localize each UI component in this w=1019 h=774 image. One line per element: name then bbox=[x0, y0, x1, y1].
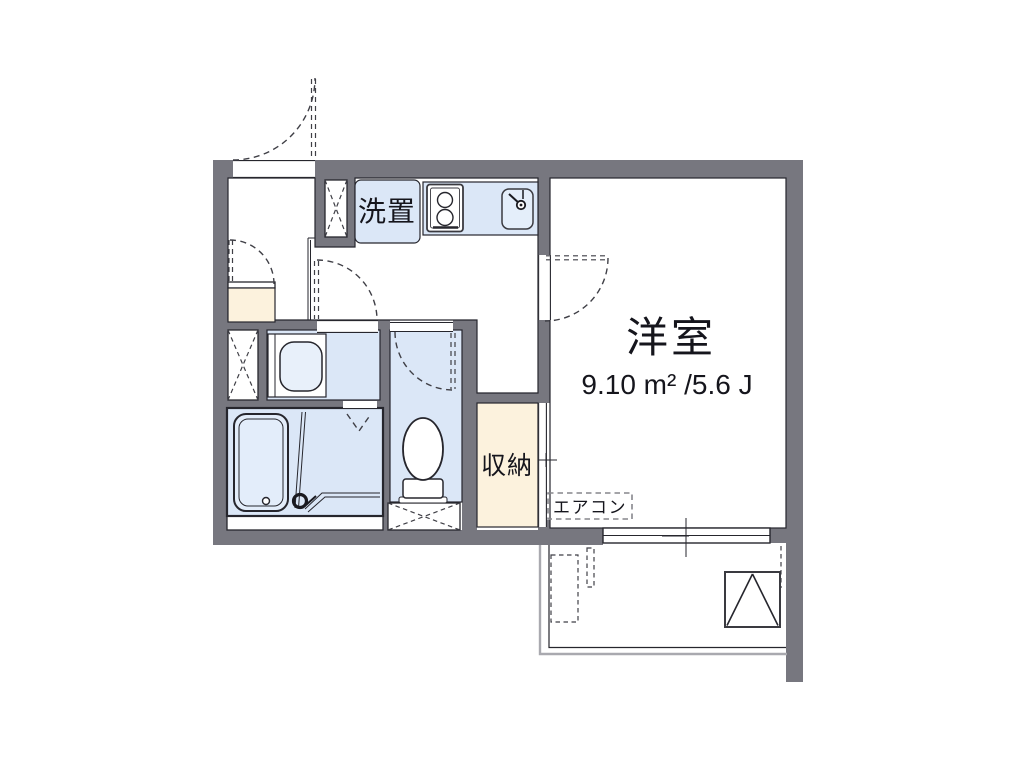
wall-closet-top bbox=[462, 393, 538, 403]
wall-room-left-upper bbox=[538, 178, 551, 255]
floor-plan: 洗置 洋室 9.10 m² /5.6 J 収納 エアコン bbox=[0, 0, 1019, 774]
pipe-space-left bbox=[228, 330, 258, 400]
shoe-cabinet bbox=[228, 288, 275, 322]
balcony-washer-pan-outline bbox=[551, 555, 578, 622]
bath-door-opening bbox=[343, 401, 377, 408]
wall-toilet-right bbox=[462, 320, 477, 532]
western-room-size: 9.10 m² /5.6 J bbox=[581, 369, 752, 400]
washer-place-label: 洗置 bbox=[358, 196, 416, 227]
bathtub-icon bbox=[234, 414, 288, 511]
western-room-label: 洋室 bbox=[626, 314, 716, 361]
wall-ps-washroom bbox=[258, 330, 267, 400]
room-door-opening bbox=[538, 255, 551, 320]
toilet-vent-box bbox=[388, 503, 460, 530]
aircon-label: エアコン bbox=[553, 498, 627, 517]
vanity-sink-icon bbox=[268, 334, 326, 397]
entrance-door-swing bbox=[233, 78, 316, 160]
toilet-icon bbox=[399, 418, 447, 503]
balcony bbox=[540, 545, 787, 654]
closet-label: 収納 bbox=[481, 452, 533, 480]
washroom-door-opening bbox=[317, 320, 378, 333]
balcony-drain-outline bbox=[587, 548, 594, 587]
wall-left bbox=[213, 160, 228, 545]
evacuation-hatch-icon bbox=[725, 572, 780, 627]
bath-frame-strip bbox=[227, 516, 383, 530]
wall-right bbox=[786, 160, 803, 682]
wall-room-left-mid bbox=[538, 320, 551, 403]
shoe-cabinet-top bbox=[228, 282, 275, 288]
entrance-opening bbox=[233, 160, 315, 178]
pipe-space-top bbox=[325, 180, 347, 237]
kitchen-sink-icon bbox=[502, 189, 533, 229]
floor-plan-canvas: 洗置 洋室 9.10 m² /5.6 J 収納 エアコン bbox=[0, 0, 1019, 774]
stove-icon bbox=[427, 185, 463, 232]
toilet-door-opening bbox=[390, 322, 453, 332]
